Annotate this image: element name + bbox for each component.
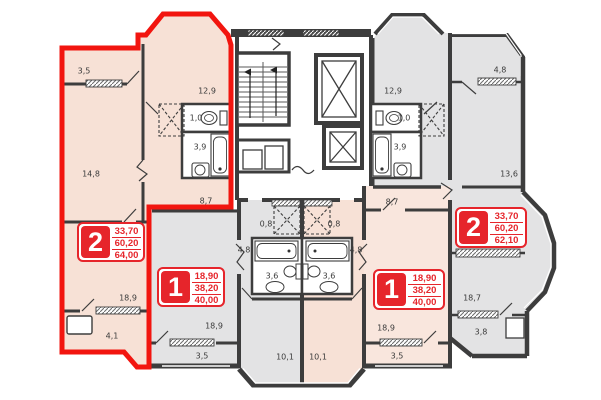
room-area-label: 3,9 (394, 143, 407, 152)
room-area-label: 12,9 (198, 87, 216, 96)
toilet-icon (201, 111, 227, 125)
window-sill (86, 80, 122, 87)
balcony-cabinet (67, 316, 92, 334)
door-symbol (292, 167, 314, 174)
room-area-label: 1,0 (398, 114, 411, 123)
bathtub-icon (373, 134, 391, 176)
room-area-label: 4,8 (494, 66, 507, 75)
room-area-label: 18,9 (377, 324, 395, 333)
room-area-label: 4,8 (350, 246, 363, 255)
room-area-label: 3,5 (196, 352, 209, 361)
apartment-number: 2 (81, 226, 110, 258)
building-core (231, 29, 371, 200)
bathroom (371, 132, 421, 178)
area-value: 40,00 (192, 294, 221, 306)
area-value: 40,00 (408, 296, 441, 308)
window-sill (458, 311, 498, 318)
balcony-cabinet (506, 318, 524, 338)
room-area-label: 3,8 (475, 328, 488, 337)
sink-icon (394, 163, 411, 177)
room-area-label: 13,6 (500, 170, 518, 179)
room-area-label: 12,9 (384, 87, 402, 96)
room-area-label: 18,7 (463, 294, 481, 303)
area-value: 60,20 (112, 237, 141, 249)
apartment-number: 1 (161, 271, 190, 303)
window-sill (170, 339, 214, 346)
room-area-label: 3,9 (194, 143, 207, 152)
sink-icon (192, 163, 209, 177)
area-value: 18,90 (192, 271, 221, 282)
window-sill (96, 307, 140, 314)
elevator-icon (316, 55, 362, 123)
apartment-badge: 2 33,70 60,20 62,10 (455, 207, 527, 248)
area-value: 64,00 (112, 249, 141, 261)
room-area-label: 3,5 (78, 67, 91, 76)
area-value: 62,10 (490, 234, 523, 246)
apartment-number: 1 (377, 273, 406, 306)
apartment-areas: 33,70 60,20 64,00 (112, 226, 141, 258)
refuse-room (237, 140, 289, 172)
area-value: 60,20 (490, 222, 523, 234)
apartment-badge: 1 18,90 38,20 40,00 (373, 269, 445, 310)
window-sill (380, 339, 422, 346)
room-area-label: 0,8 (260, 220, 273, 229)
room-area-label: 14,8 (82, 170, 100, 179)
room-area-label: 1,0 (190, 114, 203, 123)
area-value: 38,20 (192, 282, 221, 294)
apartment-badge: 1 18,90 38,20 40,00 (157, 267, 225, 307)
area-value: 33,70 (490, 211, 523, 222)
room-area-label: 4,1 (106, 332, 119, 341)
room-area-label: 3,5 (391, 352, 404, 361)
room-area-label: 10,1 (276, 353, 294, 362)
room-area-label: 10,1 (309, 353, 327, 362)
bathtub-icon (211, 134, 229, 176)
corridor-window (248, 30, 284, 36)
room-area-label: 3,6 (323, 272, 336, 281)
area-value: 18,90 (408, 273, 441, 284)
floor-plan: 3,5 12,9 1,0 3,9 14,8 8,7 18,9 4,1 18,9 … (0, 0, 601, 400)
room-area-label: 3,6 (266, 272, 279, 281)
apartment-areas: 33,70 60,20 62,10 (490, 211, 523, 244)
window-sill (456, 249, 520, 257)
room-area-label: 8,7 (386, 198, 399, 207)
apartment-areas: 18,90 38,20 40,00 (408, 273, 441, 306)
apartment-number: 2 (459, 211, 488, 244)
wc-room (371, 104, 421, 132)
room-area-label: 18,9 (205, 322, 223, 331)
room-area-label: 4,8 (238, 246, 251, 255)
room-area-label: 8,7 (200, 197, 213, 206)
area-value: 38,20 (408, 284, 441, 296)
floor-plan-drawing (0, 0, 601, 400)
staircase-icon (237, 53, 289, 125)
corridor-window (303, 30, 339, 36)
room-area-label: 18,9 (119, 294, 137, 303)
elevator-icon (324, 126, 362, 168)
apartment-areas: 18,90 38,20 40,00 (192, 271, 221, 303)
apartment-badge: 2 33,70 60,20 64,00 (77, 222, 145, 262)
bathroom (182, 132, 231, 178)
area-value: 33,70 (112, 226, 141, 237)
room-area-label: 0,8 (328, 220, 341, 229)
window-sill (478, 78, 516, 85)
